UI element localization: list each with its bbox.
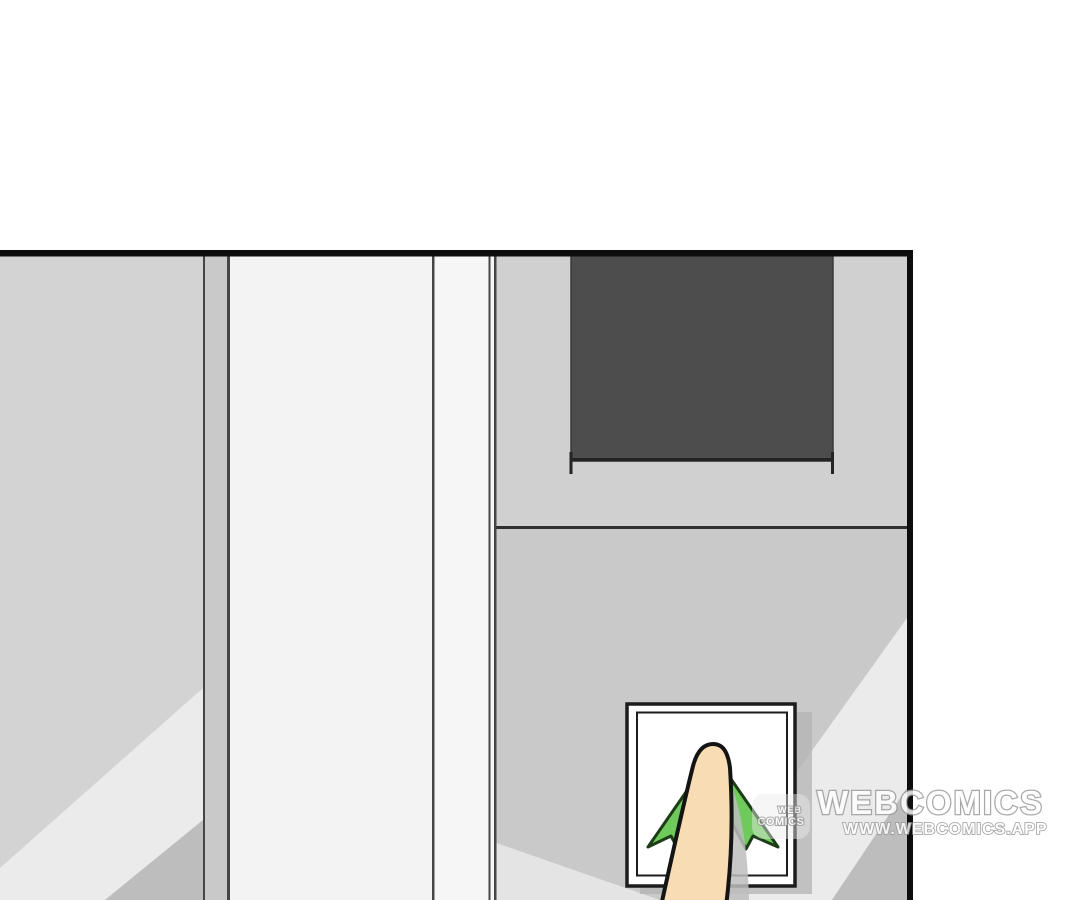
door-column	[230, 250, 432, 900]
door-gap-line	[494, 250, 497, 900]
dark-window-corner-tick	[831, 452, 834, 474]
door-gap-line	[432, 250, 435, 900]
dark-window-bottom-edge	[571, 458, 833, 462]
door-frame-strip	[203, 250, 230, 900]
panel-top-border	[0, 250, 913, 257]
dark-window	[571, 250, 833, 461]
wall-divider-line	[497, 526, 908, 529]
door-gap-line	[489, 250, 491, 900]
door-frame-line	[203, 250, 205, 900]
panel-right-border	[907, 250, 913, 900]
comic-panel	[0, 250, 913, 900]
door-gap-strip	[491, 250, 495, 900]
dark-window-corner-tick	[570, 452, 573, 474]
comic-page: WEB COMICS WEBCOMICS WWW.WEBCOMICS.APP	[0, 0, 1080, 900]
door-frame-line	[227, 250, 230, 900]
door-column-narrow	[435, 250, 489, 900]
